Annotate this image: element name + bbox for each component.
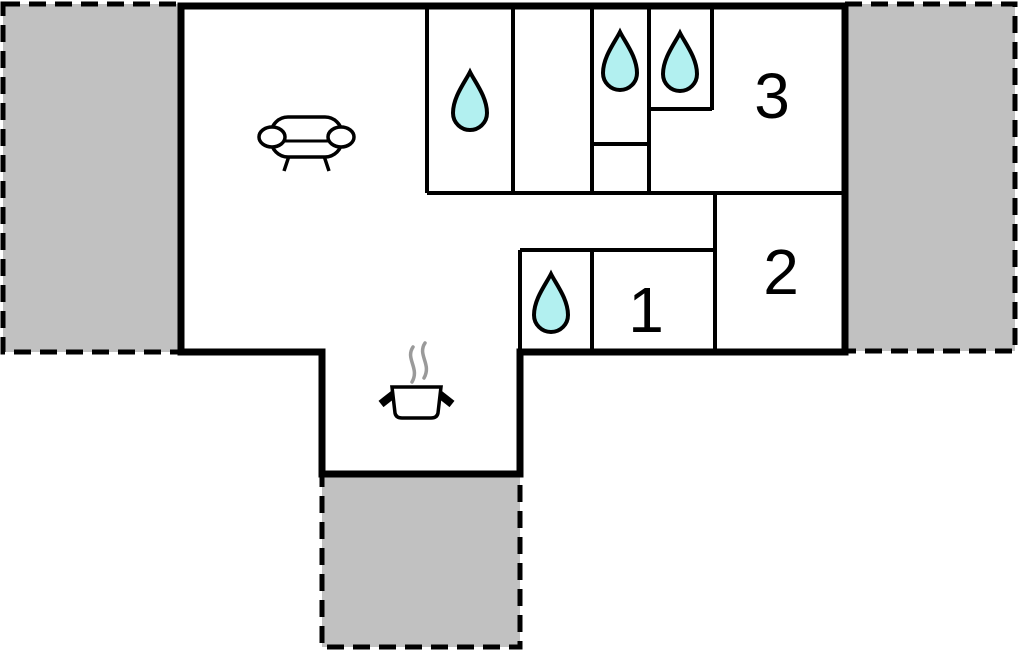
floor-plan-svg: 3 2 1 — [0, 0, 1021, 652]
room-label-2: 2 — [763, 236, 799, 308]
terrace-left — [3, 4, 181, 352]
floor-plan: 3 2 1 — [0, 0, 1021, 652]
terrace-right — [845, 4, 1015, 351]
room-label-3: 3 — [754, 60, 790, 132]
terrace-bottom — [322, 475, 520, 647]
room-label-1: 1 — [628, 274, 664, 346]
